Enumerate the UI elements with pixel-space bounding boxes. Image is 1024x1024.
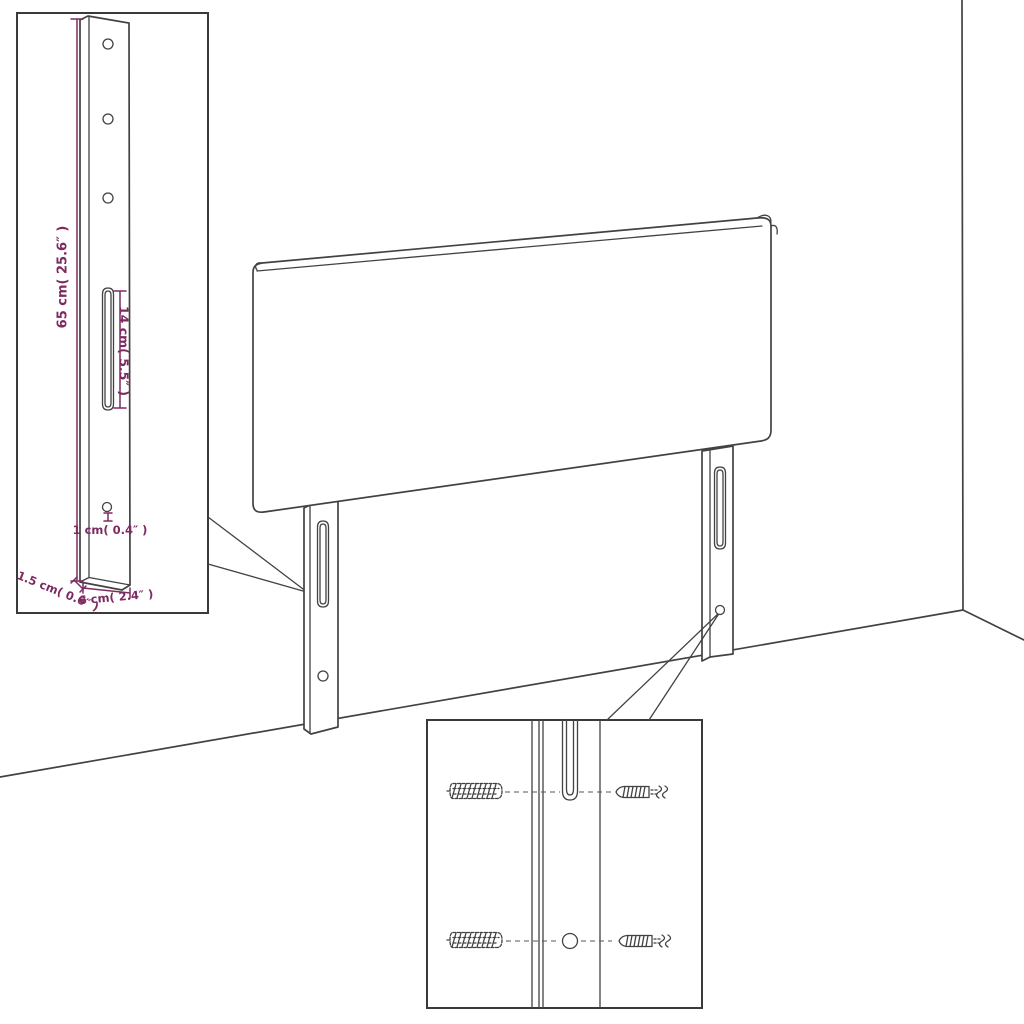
- bracket-hole: [103, 114, 113, 124]
- bracket-hole: [103, 39, 113, 49]
- bracket-small-hole: [103, 503, 112, 512]
- inset-screw-detail: [427, 720, 702, 1008]
- headboard-leg-left: [304, 501, 338, 734]
- bracket-drawing: [80, 16, 130, 590]
- headboard-assembly-diagram: 65 cm( 25.6″ ) 14 cm( 5.5″ ) 1 cm( 0.4″ …: [0, 0, 1024, 1024]
- dimension-label-hole: 1 cm( 0.4″ ): [73, 523, 148, 537]
- inset-box: [427, 720, 702, 1008]
- headboard-front-face: [253, 218, 771, 512]
- bracket-hole: [103, 193, 113, 203]
- leg-screw-hole: [716, 606, 725, 615]
- diagram-page: 65 cm( 25.6″ ) 14 cm( 5.5″ ) 1 cm( 0.4″ …: [0, 0, 1024, 1024]
- wall-corner-line: [962, 0, 963, 610]
- inset-bracket-detail: 65 cm( 25.6″ ) 14 cm( 5.5″ ) 1 cm( 0.4″ …: [15, 13, 208, 614]
- headboard-panel: [253, 215, 777, 512]
- leg-screw-hole: [318, 671, 328, 681]
- floor-line-right: [963, 610, 1024, 640]
- mounting-hole: [563, 934, 578, 949]
- dimension-label-slot: 14 cm( 5.5″ ): [117, 306, 132, 396]
- callout-wedge-left: [208, 517, 303, 591]
- dimension-label-height: 65 cm( 25.6″ ): [56, 226, 71, 329]
- headboard-leg-right: [702, 446, 733, 661]
